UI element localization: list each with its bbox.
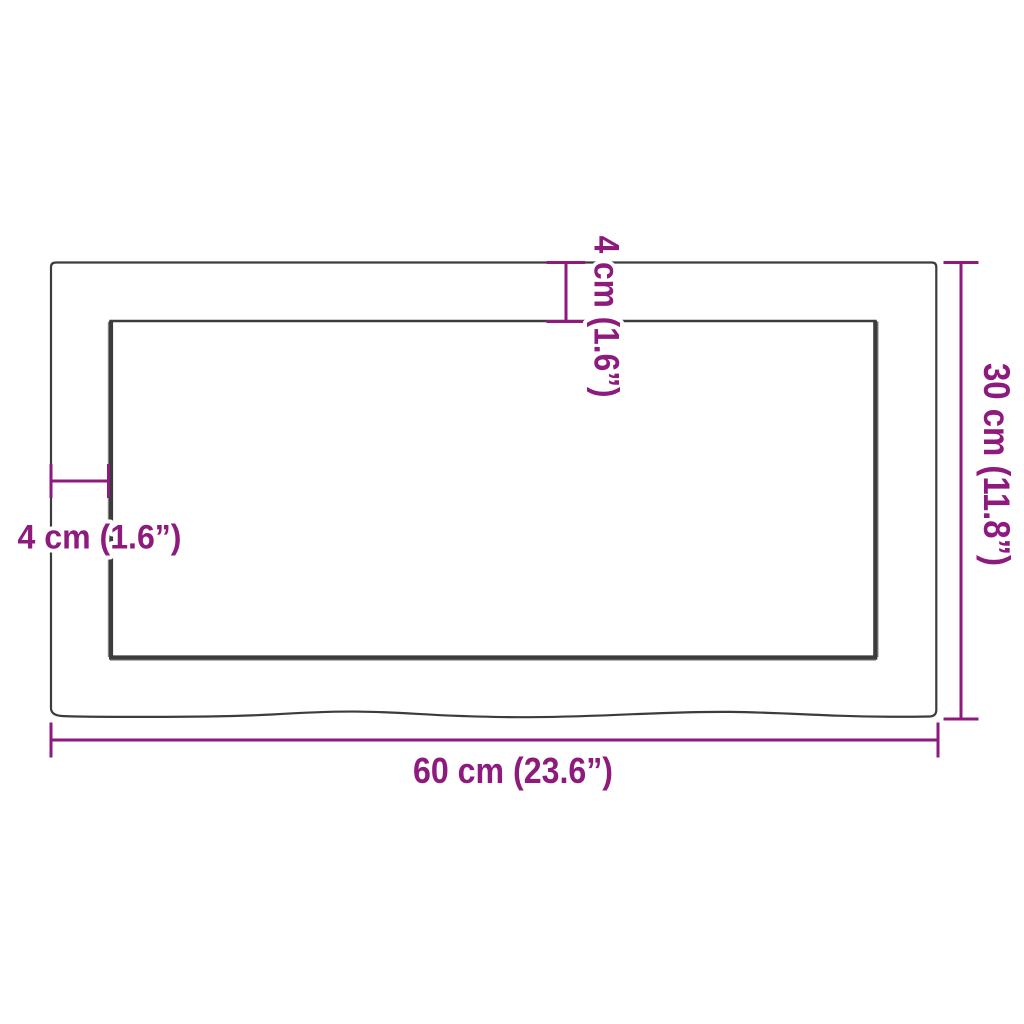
svg-text:30 cm (11.8”): 30 cm (11.8”) (976, 363, 1017, 566)
svg-text:60 cm (23.6”): 60 cm (23.6”) (413, 750, 613, 791)
svg-text:4 cm (1.6”): 4 cm (1.6”) (586, 236, 625, 398)
svg-text:4 cm (1.6”): 4 cm (1.6”) (18, 519, 182, 557)
